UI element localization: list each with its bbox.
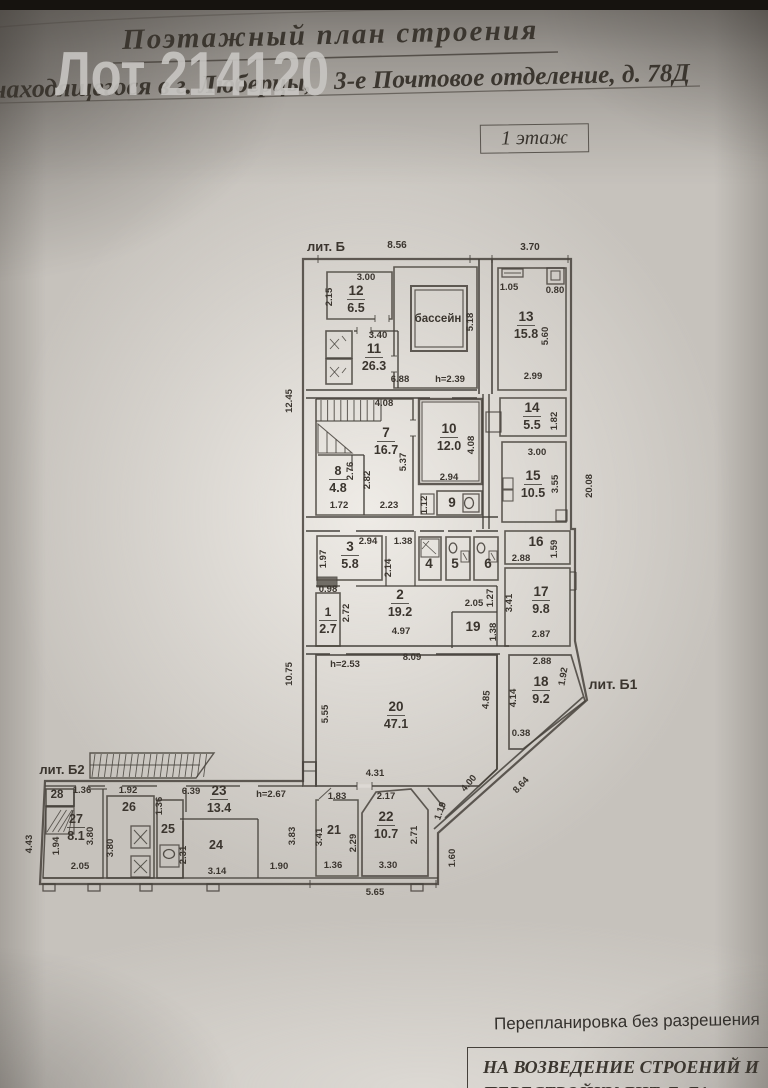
svg-text:6: 6 — [484, 556, 492, 571]
svg-text:1.83: 1.83 — [328, 791, 347, 802]
svg-text:1: 1 — [325, 605, 332, 619]
svg-text:19.2: 19.2 — [388, 605, 412, 619]
svg-text:лит. Б1: лит. Б1 — [589, 676, 638, 692]
svg-text:2.05: 2.05 — [71, 861, 90, 872]
svg-text:2.05: 2.05 — [465, 598, 484, 609]
svg-text:2.15: 2.15 — [324, 287, 335, 306]
svg-text:26.3: 26.3 — [362, 359, 386, 373]
svg-text:12.45: 12.45 — [284, 388, 295, 412]
svg-text:2.71: 2.71 — [409, 825, 420, 844]
svg-text:15: 15 — [525, 468, 541, 483]
svg-text:6.39: 6.39 — [182, 786, 201, 797]
svg-text:6.5: 6.5 — [347, 301, 364, 315]
svg-text:10: 10 — [441, 421, 456, 436]
svg-text:4: 4 — [425, 556, 433, 571]
svg-text:8: 8 — [335, 464, 342, 478]
svg-text:4.97: 4.97 — [392, 626, 411, 637]
svg-text:3.14: 3.14 — [208, 866, 227, 877]
svg-text:19: 19 — [465, 619, 480, 634]
svg-text:16.7: 16.7 — [374, 443, 398, 457]
svg-text:2.88: 2.88 — [533, 656, 552, 667]
svg-text:21: 21 — [327, 823, 341, 837]
svg-text:5.60: 5.60 — [540, 327, 551, 346]
svg-text:16: 16 — [528, 534, 544, 549]
svg-text:2.7: 2.7 — [319, 622, 336, 636]
svg-text:3.41: 3.41 — [504, 593, 515, 612]
svg-text:3.40: 3.40 — [369, 330, 388, 341]
svg-text:20.08: 20.08 — [584, 474, 595, 498]
svg-text:1.36: 1.36 — [324, 860, 343, 871]
svg-text:1.90: 1.90 — [270, 861, 289, 872]
svg-text:3.55: 3.55 — [550, 474, 561, 493]
svg-text:1.94: 1.94 — [51, 836, 62, 855]
svg-text:0.38: 0.38 — [512, 728, 531, 739]
svg-text:2.94: 2.94 — [359, 536, 378, 547]
svg-text:2.82: 2.82 — [362, 471, 373, 490]
svg-text:26: 26 — [122, 800, 136, 814]
svg-text:1.97: 1.97 — [318, 550, 329, 569]
svg-text:лит. Б2: лит. Б2 — [39, 762, 84, 777]
svg-text:h=2.67: h=2.67 — [256, 789, 286, 800]
svg-text:8.1: 8.1 — [67, 829, 84, 843]
svg-text:1.59: 1.59 — [549, 540, 560, 559]
svg-text:13.4: 13.4 — [207, 801, 231, 815]
svg-text:28: 28 — [51, 789, 64, 801]
svg-text:10.5: 10.5 — [521, 486, 545, 500]
svg-text:0.98: 0.98 — [319, 584, 338, 595]
svg-text:10.75: 10.75 — [284, 661, 295, 685]
svg-text:24: 24 — [209, 838, 223, 852]
svg-text:4.08: 4.08 — [466, 436, 477, 455]
svg-text:18: 18 — [533, 674, 549, 689]
svg-text:3: 3 — [346, 539, 354, 554]
svg-text:13: 13 — [518, 309, 534, 324]
svg-text:2.31: 2.31 — [178, 845, 189, 864]
svg-text:1.38: 1.38 — [394, 536, 413, 547]
svg-text:3.80: 3.80 — [105, 839, 116, 858]
svg-text:2.17: 2.17 — [377, 791, 396, 802]
svg-text:12.0: 12.0 — [437, 439, 461, 453]
svg-text:2.88: 2.88 — [512, 553, 531, 564]
svg-text:5.37: 5.37 — [398, 453, 409, 472]
svg-text:9.8: 9.8 — [532, 602, 549, 616]
svg-text:10.7: 10.7 — [374, 827, 398, 841]
svg-text:1.60: 1.60 — [447, 849, 458, 868]
svg-text:1.72: 1.72 — [330, 500, 349, 511]
svg-text:11: 11 — [367, 341, 382, 356]
svg-text:2.23: 2.23 — [380, 500, 399, 511]
svg-text:4.85: 4.85 — [480, 689, 493, 709]
svg-text:17: 17 — [533, 584, 548, 599]
svg-text:5.65: 5.65 — [366, 887, 385, 898]
svg-text:2.94: 2.94 — [440, 472, 459, 483]
svg-text:1.92: 1.92 — [557, 667, 571, 687]
svg-text:h=2.53: h=2.53 — [330, 659, 360, 670]
svg-text:0.80: 0.80 — [546, 285, 565, 296]
svg-text:9: 9 — [448, 495, 456, 510]
svg-text:20: 20 — [388, 699, 403, 714]
svg-text:15.8: 15.8 — [514, 327, 538, 341]
svg-text:7: 7 — [382, 425, 390, 440]
svg-text:23: 23 — [211, 783, 227, 798]
svg-text:9.2: 9.2 — [532, 692, 549, 706]
svg-text:5.8: 5.8 — [341, 557, 358, 571]
svg-text:47.1: 47.1 — [384, 717, 408, 731]
svg-text:1.92: 1.92 — [119, 785, 138, 796]
svg-text:h=2.39: h=2.39 — [435, 374, 465, 385]
svg-text:22: 22 — [378, 809, 393, 824]
svg-text:3.70: 3.70 — [520, 242, 540, 253]
svg-text:8.56: 8.56 — [387, 240, 407, 251]
svg-text:8.64: 8.64 — [511, 774, 532, 796]
svg-text:2.76: 2.76 — [345, 462, 356, 481]
svg-text:1.36: 1.36 — [73, 785, 92, 796]
svg-text:1.27: 1.27 — [485, 589, 496, 608]
svg-text:лит. Б: лит. Б — [307, 239, 345, 254]
svg-text:4.43: 4.43 — [24, 835, 35, 854]
svg-text:2.87: 2.87 — [532, 629, 551, 640]
svg-text:8.09: 8.09 — [403, 652, 422, 663]
svg-text:3.80: 3.80 — [85, 827, 96, 846]
svg-text:5.18: 5.18 — [465, 313, 476, 332]
svg-text:2.14: 2.14 — [383, 558, 394, 577]
svg-text:бассейн: бассейн — [415, 313, 462, 325]
svg-text:27: 27 — [69, 812, 83, 826]
svg-text:2.72: 2.72 — [341, 604, 352, 623]
svg-text:3.83: 3.83 — [287, 827, 298, 846]
svg-text:3.00: 3.00 — [528, 447, 547, 458]
svg-text:5.55: 5.55 — [320, 704, 331, 723]
svg-text:14: 14 — [524, 400, 540, 415]
svg-text:5: 5 — [451, 556, 459, 571]
svg-text:1.38: 1.38 — [488, 623, 499, 642]
svg-text:4.31: 4.31 — [366, 768, 385, 779]
svg-text:25: 25 — [161, 822, 175, 836]
svg-text:5.5: 5.5 — [523, 418, 540, 432]
svg-text:4.14: 4.14 — [508, 688, 519, 707]
svg-text:2.99: 2.99 — [524, 371, 543, 382]
svg-text:3.00: 3.00 — [357, 272, 376, 283]
svg-text:6.88: 6.88 — [391, 374, 410, 385]
svg-text:3.41: 3.41 — [314, 827, 325, 846]
svg-text:1.36: 1.36 — [154, 797, 165, 816]
svg-text:1.12: 1.12 — [419, 496, 430, 515]
svg-text:4.08: 4.08 — [375, 398, 394, 409]
svg-text:2: 2 — [396, 587, 404, 602]
svg-text:2.29: 2.29 — [348, 834, 359, 853]
svg-text:3.30: 3.30 — [379, 860, 398, 871]
svg-text:1.05: 1.05 — [500, 282, 519, 293]
svg-text:4.8: 4.8 — [329, 481, 346, 495]
svg-text:12: 12 — [348, 283, 363, 298]
svg-text:1.82: 1.82 — [549, 412, 560, 431]
